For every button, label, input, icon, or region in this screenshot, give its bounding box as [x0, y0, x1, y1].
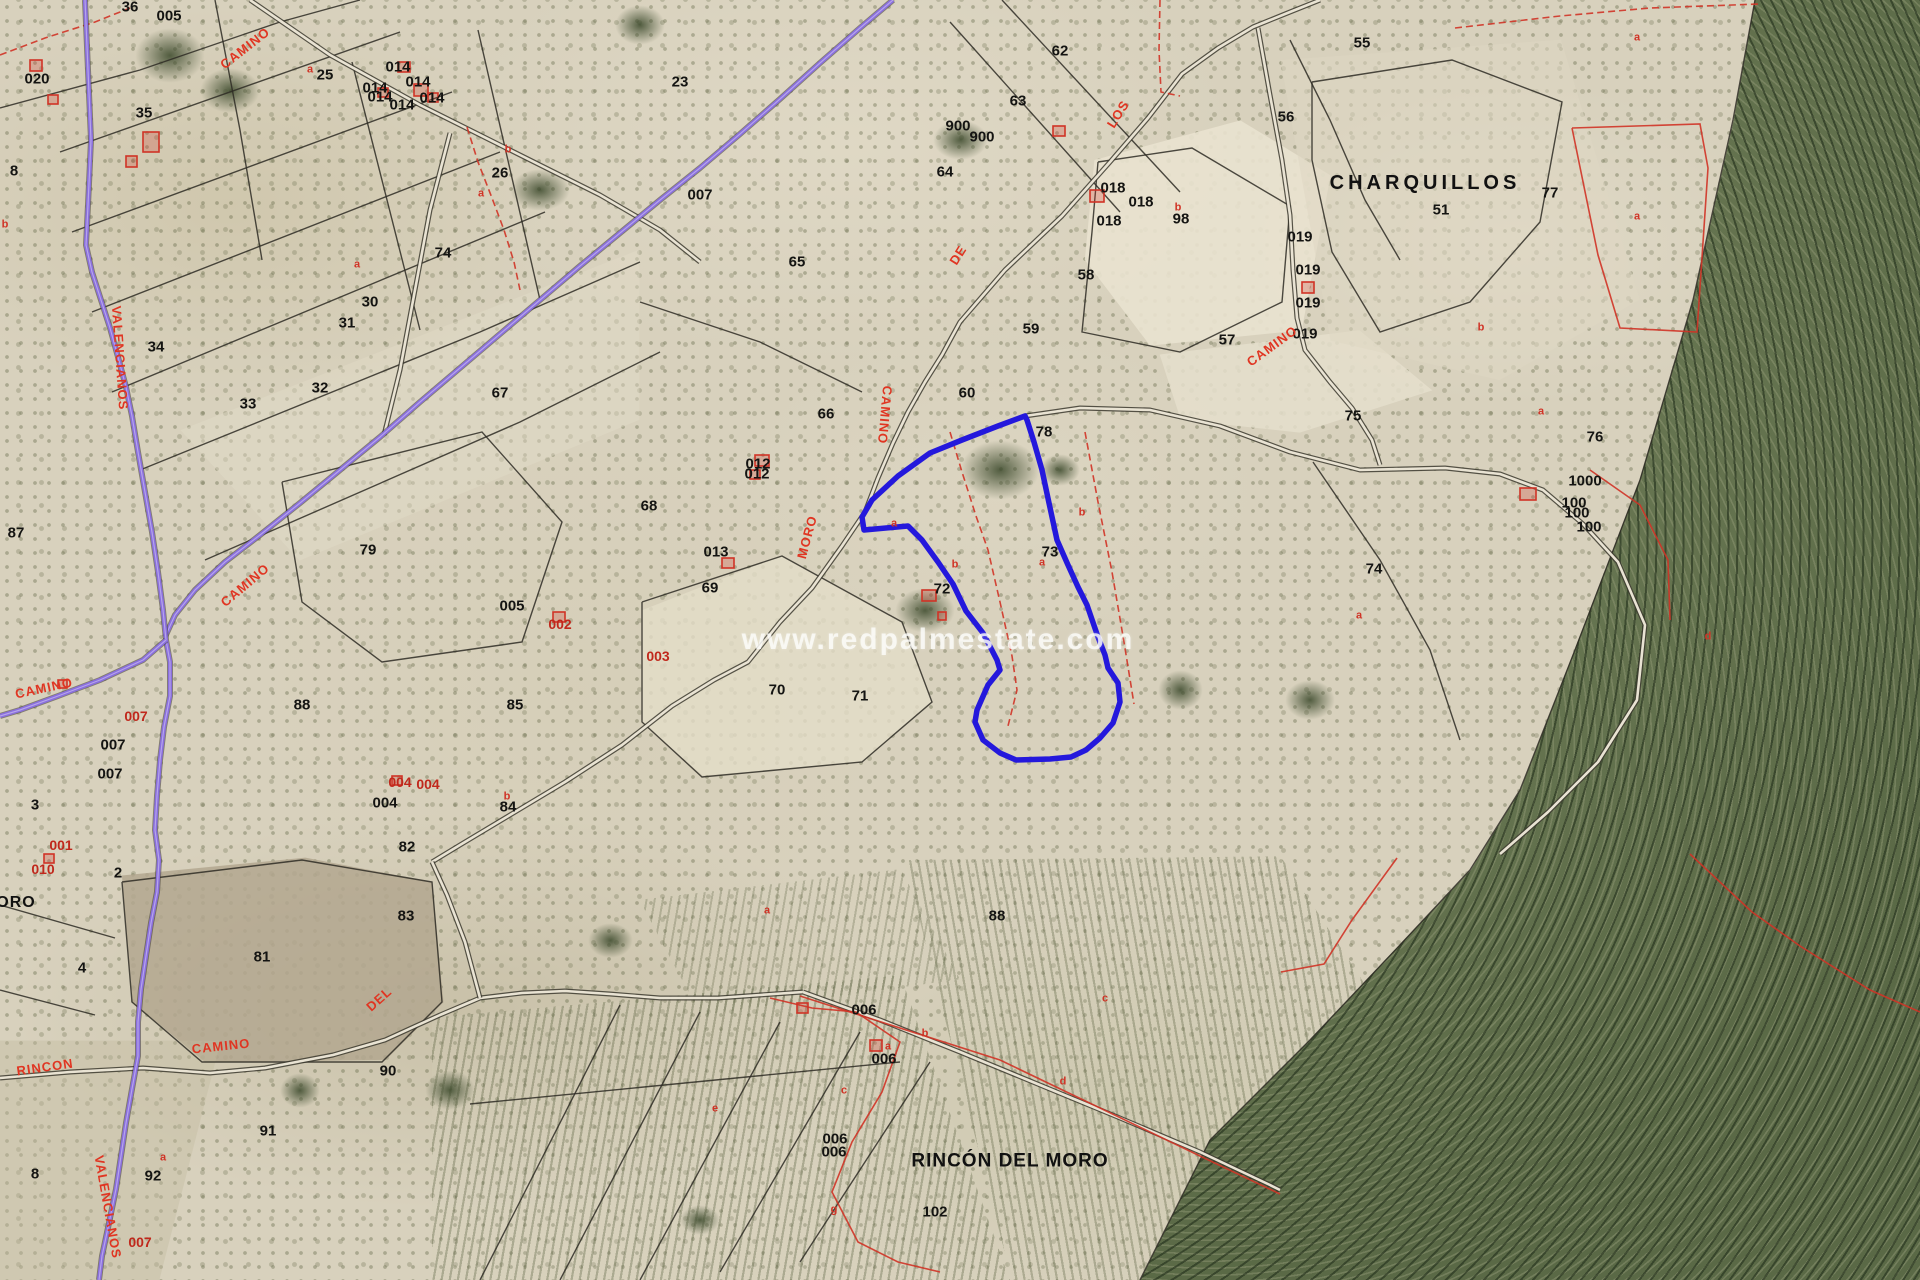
subparcel-letter-label: g [831, 1205, 838, 1216]
parcel-number-label: 014 [405, 75, 430, 90]
parcel-number-label: 019 [1295, 263, 1320, 278]
parcel-number-label: 900 [969, 130, 994, 145]
road-name-label: DE [947, 243, 969, 267]
place-name-label: RINCÓN DEL MORO [911, 1152, 1108, 1171]
subparcel-letter-label: b [1079, 508, 1086, 519]
subparcel-letter-label: a [354, 260, 360, 271]
parcel-number-label: 3 [31, 798, 39, 813]
subparcel-letter-label: a [764, 906, 770, 917]
parcel-number-label: 34 [148, 340, 165, 355]
subparcel-letter-label: b [952, 560, 959, 571]
red-parcel-number-label: 003 [646, 649, 669, 663]
parcel-number-label: 70 [769, 683, 786, 698]
red-parcel-number-label: 004 [388, 775, 411, 789]
red-parcel-number-label: 002 [548, 617, 571, 631]
parcel-number-label: 55 [1354, 36, 1371, 51]
parcel-number-label: 64 [937, 165, 954, 180]
parcel-number-label: 79 [360, 543, 377, 558]
subparcel-letter-label: b [505, 145, 512, 156]
subparcel-letter-label: a [1356, 611, 1362, 622]
parcel-number-label: 85 [507, 698, 524, 713]
parcel-number-label: 26 [492, 166, 509, 181]
place-name-label: ORO [0, 895, 36, 911]
parcel-number-label: 69 [702, 581, 719, 596]
road-name-label: DEL [364, 984, 394, 1013]
parcel-number-label: 74 [435, 246, 452, 261]
parcel-number-label: 006 [851, 1003, 876, 1018]
parcel-number-label: 102 [922, 1205, 947, 1220]
parcel-number-label: 57 [1219, 333, 1236, 348]
watermark: www.redpalmestate.com [742, 623, 1135, 657]
parcel-number-label: 007 [687, 188, 712, 203]
red-parcel-number-label: 007 [124, 709, 147, 723]
parcel-number-label: 77 [1542, 186, 1559, 201]
cadastral-aerial-map: 3600502025014014014014014014358267430313… [0, 0, 1920, 1280]
subparcel-letter-label: b [1175, 203, 1182, 214]
subparcel-letter-label: a [1538, 407, 1544, 418]
subparcel-letter-label: a [891, 519, 897, 530]
place-name-label: CHARQUILLOS [1330, 173, 1521, 193]
parcel-number-label: 30 [362, 295, 379, 310]
subparcel-letter-label: a [478, 189, 484, 200]
parcel-number-label: 90 [380, 1064, 397, 1079]
parcel-number-label: 8 [10, 164, 18, 179]
parcel-number-label: 72 [934, 582, 951, 597]
parcel-number-label: 006 [871, 1052, 896, 1067]
parcel-number-label: 33 [240, 397, 257, 412]
parcel-number-label: 98 [1173, 212, 1190, 227]
parcel-number-label: 31 [339, 316, 356, 331]
subparcel-letter-label: b [922, 1029, 929, 1040]
subparcel-letter-label: a [1039, 558, 1045, 569]
road-name-label: VALENCIANOS [93, 1154, 124, 1259]
red-parcel-number-label: 010 [31, 862, 54, 876]
parcel-number-label: 82 [399, 840, 416, 855]
subparcel-letter-label: a [885, 1042, 891, 1053]
parcel-number-label: 2 [114, 866, 122, 881]
subparcel-letter-label: a [307, 65, 313, 76]
parcel-number-label: 012 [744, 467, 769, 482]
subparcel-letter-label: d [1060, 1077, 1067, 1088]
road-name-label: LOS [1105, 98, 1132, 130]
parcel-number-label: 4 [78, 961, 86, 976]
parcel-number-label: 58 [1078, 268, 1095, 283]
parcel-number-label: 65 [789, 255, 806, 270]
parcel-number-label: 88 [989, 909, 1006, 924]
parcel-number-label: 59 [1023, 322, 1040, 337]
parcel-number-label: 63 [1010, 94, 1027, 109]
parcel-number-label: 83 [398, 909, 415, 924]
subparcel-letter-label: e [712, 1104, 718, 1115]
parcel-number-label: 8 [31, 1167, 39, 1182]
parcel-number-label: 74 [1366, 562, 1383, 577]
parcel-number-label: 88 [294, 698, 311, 713]
parcel-number-label: 68 [641, 499, 658, 514]
parcel-number-label: 91 [260, 1124, 277, 1139]
parcel-number-label: 66 [818, 407, 835, 422]
road-name-label: CAMINO [218, 25, 272, 71]
subparcel-letter-label: a [160, 1153, 166, 1164]
parcel-number-label: 81 [254, 950, 271, 965]
parcel-number-label: 018 [1096, 214, 1121, 229]
parcel-number-label: 78 [1036, 425, 1053, 440]
subparcel-letter-label: c [1102, 994, 1108, 1005]
parcel-number-label: 019 [1287, 230, 1312, 245]
parcel-number-label: 62 [1052, 44, 1069, 59]
parcel-number-label: 005 [156, 9, 181, 24]
subparcel-letter-label: a [1634, 33, 1640, 44]
parcel-number-label: 018 [1128, 195, 1153, 210]
subparcel-letter-label: b [1478, 323, 1485, 334]
road-name-label: RINCON [16, 1057, 75, 1078]
subparcel-letter-label: c [841, 1086, 847, 1097]
parcel-number-label: 014 [385, 60, 410, 75]
red-parcel-number-label: 001 [49, 838, 72, 852]
subparcel-letter-label: a [1634, 212, 1640, 223]
red-parcel-number-label: 007 [128, 1235, 151, 1249]
parcel-number-label: 020 [24, 72, 49, 87]
road-name-label: CAMINO [1244, 323, 1299, 368]
parcel-number-label: 006 [821, 1145, 846, 1160]
parcel-number-label: 23 [672, 75, 689, 90]
road-name-label: MORO [795, 514, 819, 560]
parcel-number-label: 019 [1295, 296, 1320, 311]
road-name-label: CAMINO [876, 385, 894, 445]
parcel-number-label: 005 [499, 599, 524, 614]
parcel-number-label: 75 [1345, 409, 1362, 424]
subparcel-letter-label: b [2, 220, 9, 231]
parcel-number-label: 100 [1576, 520, 1601, 535]
parcel-number-label: 87 [8, 526, 25, 541]
road-name-label: CAMINO [218, 561, 271, 609]
parcel-number-label: 71 [852, 689, 869, 704]
parcel-number-label: 004 [372, 796, 397, 811]
parcel-number-label: 014 [389, 98, 414, 113]
subparcel-letter-label: d [1705, 632, 1712, 643]
parcel-number-label: 007 [97, 767, 122, 782]
parcel-number-label: 018 [1100, 181, 1125, 196]
parcel-number-label: 60 [959, 386, 976, 401]
parcel-number-label: 014 [419, 91, 444, 106]
parcel-number-label: 1000 [1568, 474, 1601, 489]
parcel-number-label: 51 [1433, 203, 1450, 218]
red-parcel-number-label: 004 [416, 777, 439, 791]
parcel-number-label: 56 [1278, 110, 1295, 125]
parcel-number-label: 007 [100, 738, 125, 753]
parcel-number-label: 013 [703, 545, 728, 560]
road-name-label: VALENCIANOS [110, 305, 130, 410]
parcel-number-label: 25 [317, 68, 334, 83]
parcel-number-label: 32 [312, 381, 329, 396]
road-name-label: CAMINO [14, 676, 74, 701]
parcel-number-label: 76 [1587, 430, 1604, 445]
subparcel-letter-label: b [504, 792, 511, 803]
parcel-number-label: 900 [945, 119, 970, 134]
road-name-label: CAMINO [191, 1036, 251, 1055]
parcel-number-label: 36 [122, 0, 139, 15]
parcel-number-label: 67 [492, 386, 509, 401]
parcel-number-label: 35 [136, 106, 153, 121]
parcel-number-label: 92 [145, 1169, 162, 1184]
